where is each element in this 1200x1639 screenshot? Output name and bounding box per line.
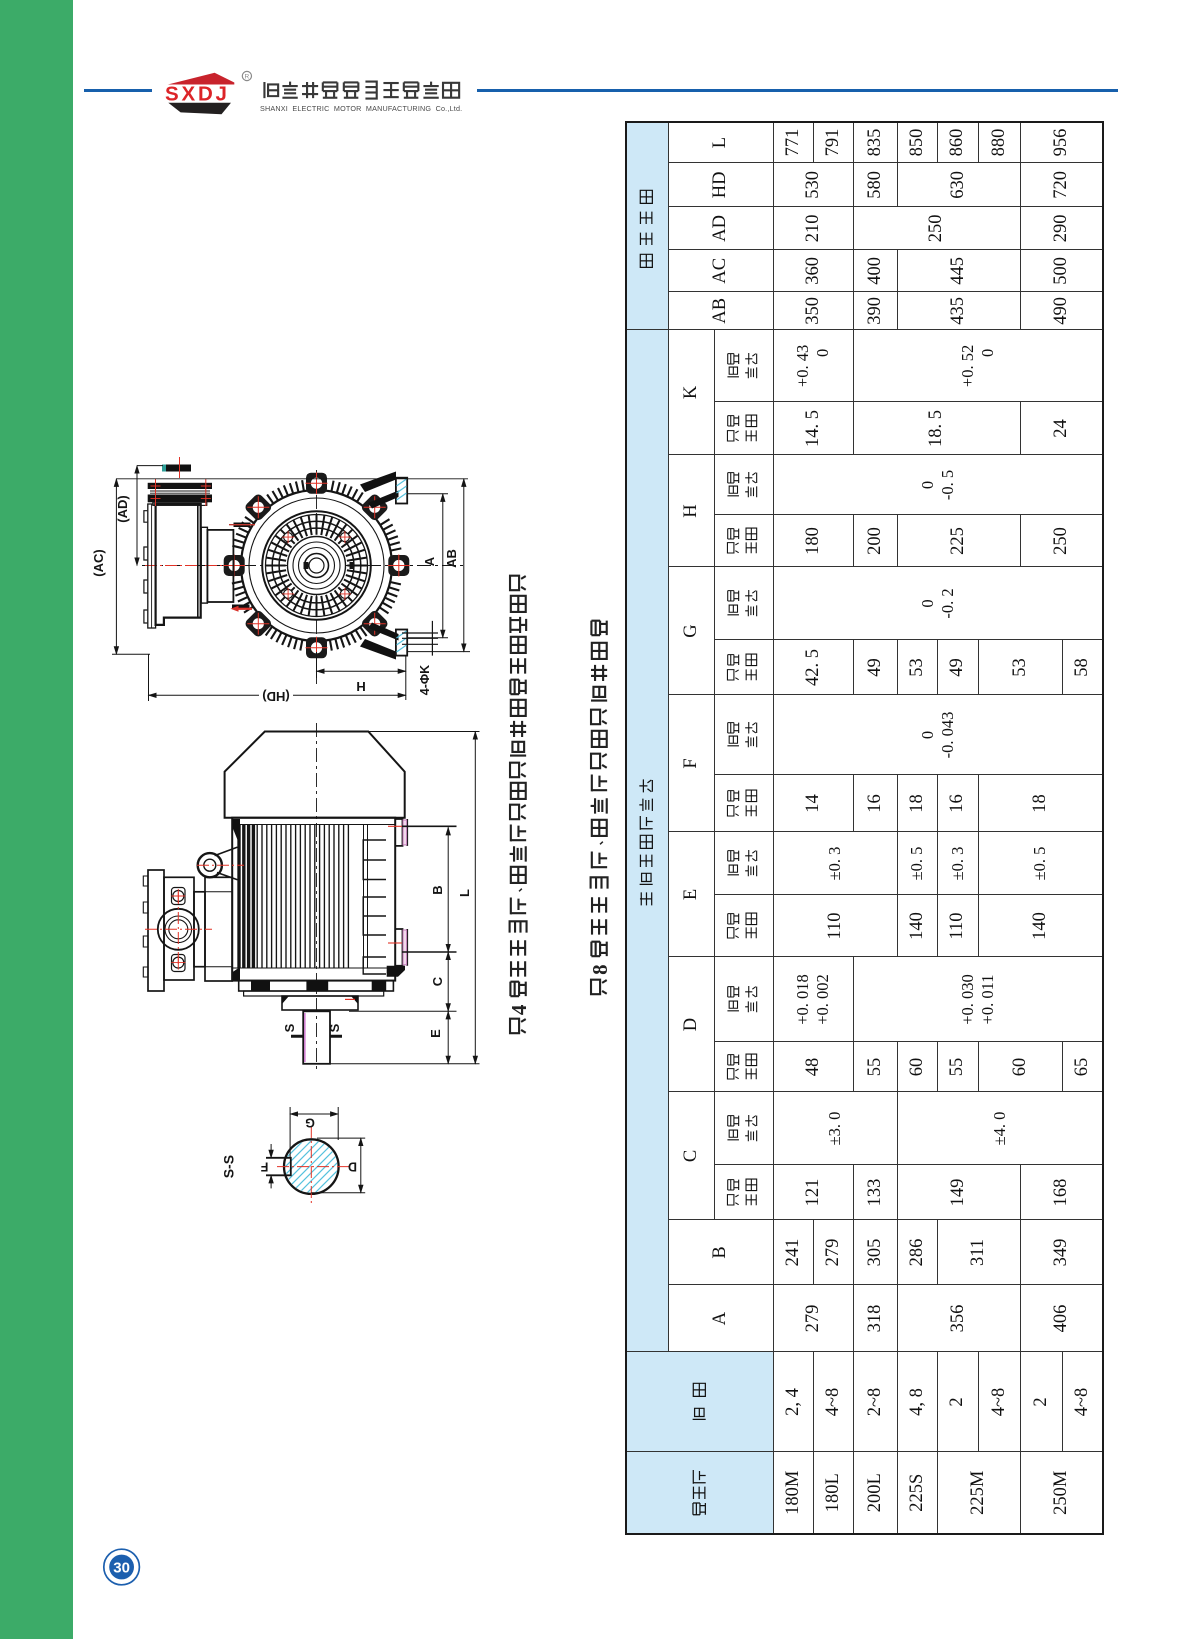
svg-text:E: E	[428, 1029, 443, 1038]
svg-text:A: A	[422, 556, 437, 566]
svg-text:B: B	[430, 885, 445, 894]
svg-text:4-ΦK: 4-ΦK	[418, 665, 432, 695]
svg-text:H: H	[356, 679, 365, 694]
svg-text:AB: AB	[444, 549, 459, 568]
svg-text:(AD): (AD)	[115, 495, 130, 522]
svg-text:R: R	[245, 73, 250, 80]
svg-text:C: C	[430, 976, 445, 986]
svg-text:G: G	[305, 1116, 315, 1130]
svg-text:S-S: S-S	[220, 1155, 236, 1178]
svg-text:S: S	[327, 1023, 342, 1032]
svg-text:(AC): (AC)	[91, 549, 106, 576]
svg-text:D: D	[348, 1160, 357, 1174]
svg-text:F: F	[260, 1160, 268, 1174]
svg-text:(HD): (HD)	[262, 689, 289, 704]
svg-text:SXDJ: SXDJ	[165, 83, 230, 106]
svg-text:30: 30	[113, 1559, 130, 1576]
svg-text:L: L	[457, 889, 472, 897]
svg-text:S: S	[282, 1023, 297, 1032]
